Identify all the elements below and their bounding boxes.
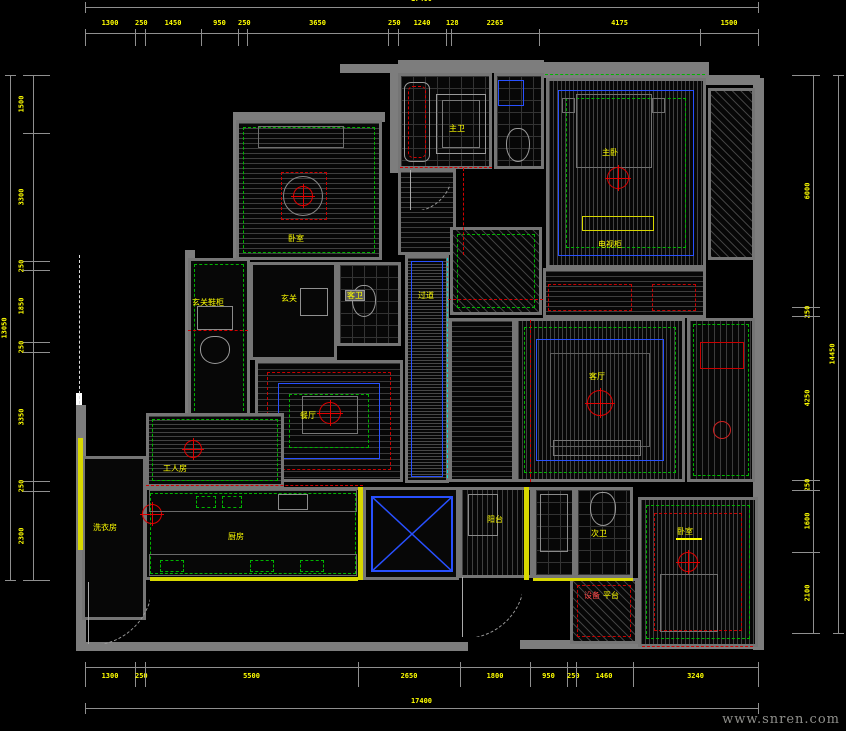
dim-tick [247,29,248,46]
dim-value: 250 [14,342,28,352]
wall [543,62,709,78]
fixture-box [548,284,632,311]
fixture-box [258,126,344,148]
toilet-symbol [506,128,530,162]
dim-value: 250 [800,480,814,490]
cad-line [530,320,531,482]
dim-line [85,33,758,34]
dim-value: 2100 [800,552,814,633]
fixture-box [660,574,718,632]
dim-tick [539,29,540,46]
dim-tick [758,2,759,13]
dim-value: 1850 [14,270,28,342]
toilet-symbol [590,492,616,526]
dim-tick [700,29,701,46]
fixture-box [250,560,274,572]
dim-value: 4175 [539,19,700,27]
cad-line [79,255,80,404]
dim-tick [5,580,16,581]
cross-lines [371,496,453,572]
fixture-box [553,440,641,456]
dim-value: 4250 [800,316,814,480]
fixture-box [278,494,308,510]
dim-tick [758,662,759,687]
dim-value: 250 [135,672,145,680]
dim-value: 2265 [451,19,539,27]
bathtub-inner [408,86,426,158]
fixture-box [197,306,233,330]
dim-value: 3300 [14,133,28,261]
master-bedroom-label: 主卧 [602,148,618,157]
cad-line [448,299,543,300]
toilet-symbol [352,285,376,317]
dining-room-label: 餐厅 [300,411,316,420]
dim-total-value: 14450 [826,75,840,633]
accent-bar [78,438,83,550]
cad-line [188,330,248,331]
dim-text: 3350 [17,409,25,426]
dim-value: 950 [201,19,238,27]
guest-bath-label: 客卫 [346,291,364,300]
arc-curve [462,577,522,637]
circle-symbol [713,421,731,439]
tv-cabinet-label: 电视柜 [598,240,622,249]
bathtub-symbol [404,82,430,162]
accent-bar [533,578,633,581]
dim-total-value: 13050 [0,75,12,580]
cad-line [447,258,448,478]
door-swing-arc [88,582,150,644]
kitchen-label: 厨房 [228,532,244,541]
fixture-box [222,496,242,508]
living-room-label: 客厅 [589,372,605,381]
dim-value: 1600 [800,490,814,552]
symbol-cross [193,438,194,460]
arc-curve [410,170,450,210]
fixture-box [582,216,654,231]
dim-value: 250 [14,481,28,491]
symbol-cross [688,550,689,574]
fixture-box [149,490,357,512]
arc-curve [88,582,150,644]
dim-value: 3240 [633,672,758,680]
dim-value: 250 [135,19,145,27]
dim-text: 1500 [17,96,25,113]
maid-room-label: 工人房 [163,464,187,473]
dim-value: 1800 [460,672,530,680]
laundry-label: 洗衣房 [93,523,117,532]
dim-text: 1850 [17,298,25,315]
dim-tick [145,29,146,46]
master-bath-label: 主卫 [449,124,465,133]
shoe-cabinet-label: 玄关鞋柜 [192,298,224,307]
dim-total-value: 17400 [85,697,758,705]
equipment-label-1: 设备 [584,591,600,600]
door-swing-arc [462,577,522,637]
dim-text: 13050 [1,317,9,338]
dim-text: 14450 [829,343,837,364]
dim-total-value: 17400 [85,0,758,3]
fixture-box [300,288,328,316]
ceiling-fan-symbol [607,167,629,189]
dim-tick [201,29,202,46]
dim-tick [792,633,820,634]
dim-value: 1240 [398,19,446,27]
ceiling-outline [457,234,535,308]
dim-text: 2100 [803,584,811,601]
wall [340,64,408,73]
symbol-cross [618,165,619,191]
dim-value: 1450 [145,19,201,27]
dim-text: 3300 [17,189,25,206]
room-maid-room [146,413,284,487]
dim-tick [833,633,844,634]
dim-tick [238,29,239,46]
symbol-cross [600,388,601,418]
fixture-box [196,496,216,508]
door-swing-arc [410,170,450,210]
dim-value: 950 [530,672,567,680]
cad-line [642,646,753,647]
chandelier-symbol [587,390,613,416]
accent-bar [524,487,529,580]
dim-value: 1500 [700,19,758,27]
dim-line [85,667,758,668]
dim-tick [451,29,452,46]
watermark: www.snren.com [722,712,840,727]
dim-text: 1600 [803,513,811,530]
dim-tick [758,29,759,46]
dim-value: 1300 [85,672,135,680]
fixture-box [562,98,575,113]
dim-text: 2300 [17,527,25,544]
fixture-box [700,342,744,369]
room-corridor [405,255,449,483]
service-balcony-label: 阳台 [487,515,503,524]
dim-text: 6000 [803,183,811,200]
room-equipment-platform [570,578,638,644]
fixture-box [498,80,524,106]
dim-tick [85,29,86,46]
bedroom-bottom-right-label: 卧室 [677,527,693,536]
dim-value: 250 [388,19,398,27]
toilet-symbol [200,336,230,364]
dim-value: 2300 [14,491,28,580]
accent-bar [676,538,702,540]
wall [398,60,544,73]
room-mid-hall [449,318,515,482]
fixture-box [652,284,696,311]
lightwell-cross-box [371,496,453,572]
dim-tick [23,580,50,581]
equipment-label-2: 平台 [603,591,619,600]
dim-value: 2650 [358,672,460,680]
dim-total-line [85,7,758,8]
dim-tick [398,29,399,46]
dim-text: 4250 [803,390,811,407]
fixture-box [540,494,568,552]
cad-line [146,485,363,486]
fixture-box [281,172,327,220]
dim-tick [388,29,389,46]
dim-value: 6000 [800,75,814,307]
bedroom-top-left-label: 卧室 [288,234,304,243]
corridor-label: 过道 [418,291,434,300]
cad-line [400,167,492,168]
floorplan-canvas: 卧室主卫主卧电视柜过道客卫玄关玄关鞋柜餐厅客厅工人房洗衣房厨房阳台次卫卧室设备平… [0,0,846,731]
dim-value: 3650 [247,19,388,27]
dim-value: 5500 [145,672,358,680]
ceiling-fan-symbol [678,552,698,572]
cad-line [545,74,705,75]
fixture-box [160,560,184,572]
accent-bar [358,487,363,580]
second-bath-label: 次卫 [591,529,607,538]
dim-line [33,75,34,580]
dim-value: 1300 [85,19,135,27]
wall [700,75,760,85]
dim-tick [135,29,136,46]
dim-value: 3350 [14,352,28,482]
dim-value: 1460 [576,672,632,680]
cad-line [463,168,464,255]
fixture-box [652,98,665,113]
dim-value: 1500 [14,75,28,133]
accent-bar [150,577,358,581]
fixture-box [300,560,324,572]
dim-total-line [85,708,758,709]
room-bay-strip-top-right [708,88,755,260]
dim-tick [446,29,447,46]
dim-tick [85,2,86,13]
ceiling-fan-symbol [184,440,202,458]
foyer-label: 玄关 [281,294,297,303]
